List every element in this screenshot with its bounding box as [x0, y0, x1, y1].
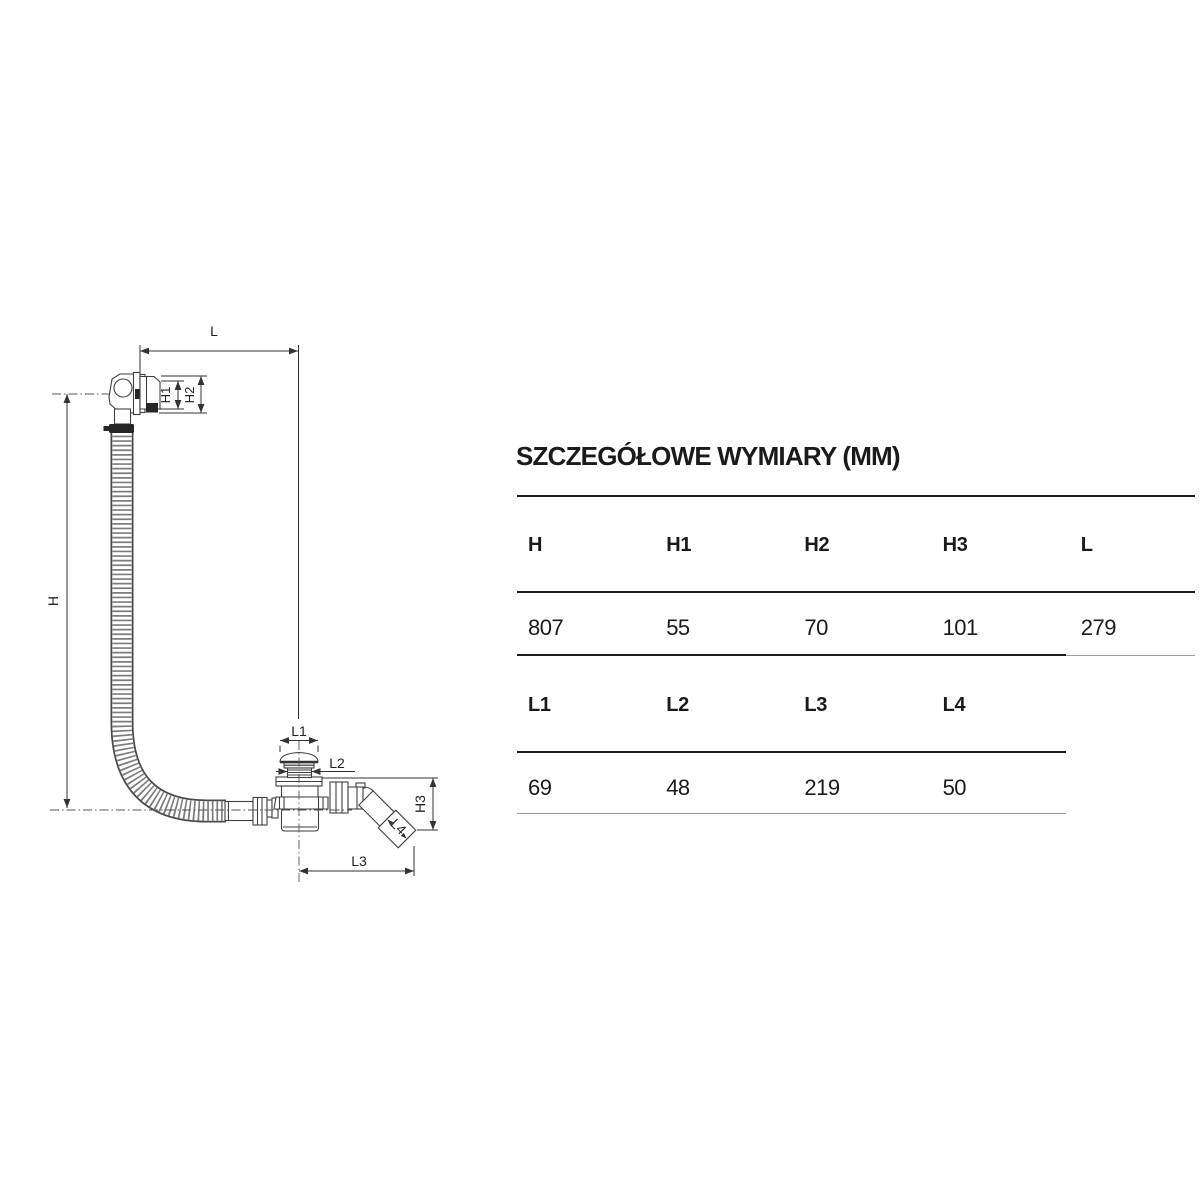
- table2-rule-bottom: [517, 813, 1066, 814]
- table1-value-h: 807: [517, 615, 655, 641]
- table1-value-h1: 55: [655, 615, 793, 641]
- table2-header-l3: L3: [793, 694, 931, 717]
- table2-value-l2: 48: [655, 775, 793, 801]
- table1-rule-bottom: [517, 654, 1066, 656]
- table1-rule-bottom-thin: [1066, 655, 1195, 656]
- label-L3: L3: [351, 853, 367, 869]
- table1-value-h3: 101: [932, 615, 1070, 641]
- label-H3: H3: [412, 795, 428, 813]
- corrugated-hose: [122, 431, 226, 811]
- table1-header-h2: H2: [793, 534, 931, 557]
- dimension-L: L: [140, 323, 298, 372]
- table2-value-l3: 219: [793, 775, 931, 801]
- label-L1: L1: [291, 723, 307, 739]
- section-title: SZCZEGÓŁOWE WYMIARY (MM): [516, 441, 900, 472]
- table2-rule-mid: [517, 751, 1066, 753]
- dimension-L3: L3: [299, 846, 414, 876]
- cable-connector: [146, 403, 158, 413]
- overflow-knob: [114, 379, 132, 397]
- table1-value-l: 279: [1070, 615, 1200, 641]
- table2-value-row: 69 48 219 50: [517, 775, 1070, 801]
- overflow-fitting: [104, 373, 161, 434]
- table2-value-l1: 69: [517, 775, 655, 801]
- technical-drawing: L H H1 H2 L1: [0, 0, 1200, 1200]
- label-H1: H1: [158, 387, 173, 404]
- table1-rule-top: [517, 495, 1195, 497]
- table1-header-h3: H3: [932, 534, 1070, 557]
- table1-rule-mid: [517, 591, 1195, 593]
- table1-header-h: H: [517, 534, 655, 557]
- table1-value-row: 807 55 70 101 279: [517, 615, 1200, 641]
- table2-header-l2: L2: [655, 694, 793, 717]
- spec-sheet: L H H1 H2 L1: [0, 0, 1200, 1200]
- table1-header-row: H H1 H2 H3 L: [517, 534, 1200, 557]
- dimension-H: H: [45, 394, 67, 808]
- outlet-nut: [330, 782, 348, 813]
- label-L2: L2: [329, 755, 345, 771]
- dimension-H1: H1: [158, 381, 184, 409]
- table2-header-l4: L4: [932, 694, 1070, 717]
- drain-assembly: [225, 753, 416, 848]
- label-H: H: [45, 596, 61, 606]
- table1-header-h1: H1: [655, 534, 793, 557]
- hose-nut: [253, 798, 267, 826]
- hose-clamp: [109, 424, 134, 433]
- table2-header-l1: L1: [517, 694, 655, 717]
- table2-value-l4: 50: [932, 775, 1070, 801]
- label-H2: H2: [182, 387, 197, 404]
- label-L: L: [210, 323, 218, 339]
- table1-value-h2: 70: [793, 615, 931, 641]
- table1-header-l: L: [1070, 534, 1200, 557]
- table2-header-row: L1 L2 L3 L4: [517, 694, 1070, 717]
